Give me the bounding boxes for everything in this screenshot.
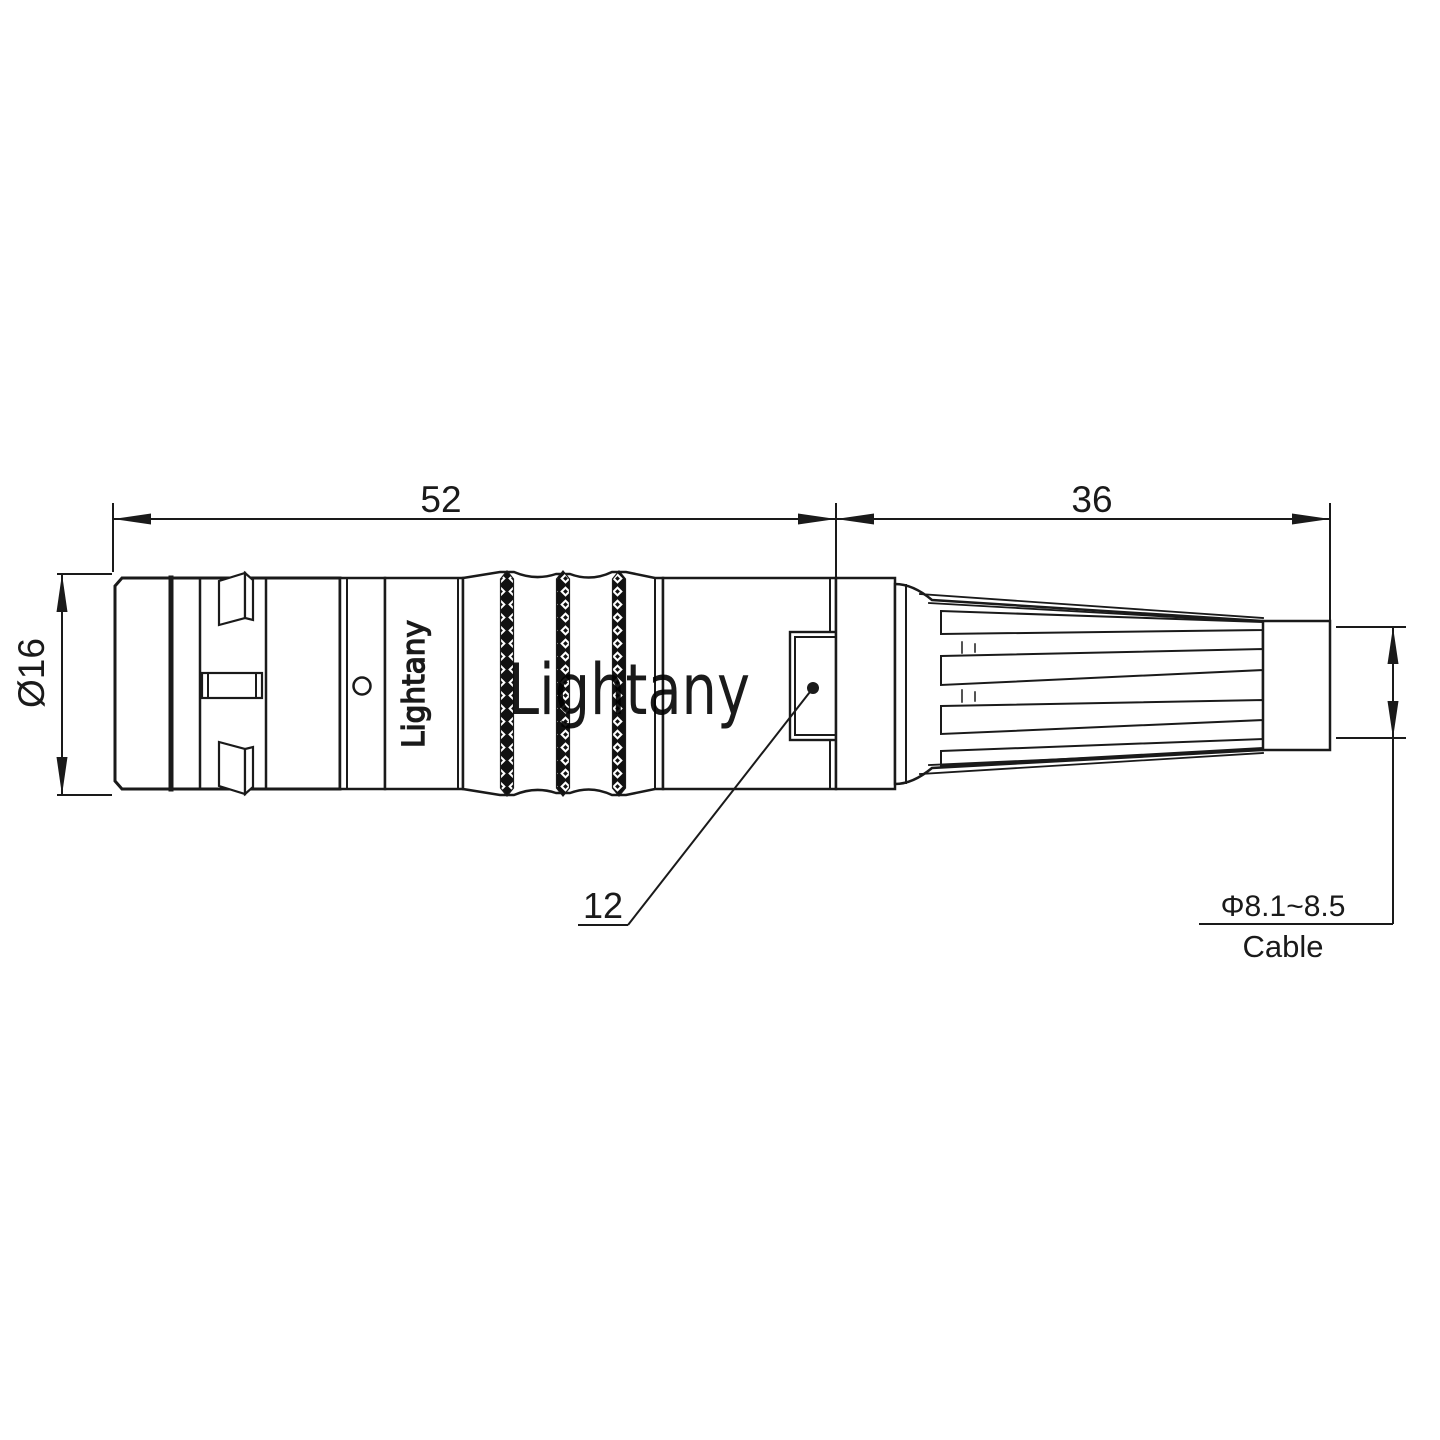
collar-hole (354, 678, 371, 695)
coupling-collar (340, 578, 385, 789)
arrowhead (836, 514, 874, 525)
arrowhead (57, 574, 68, 612)
cable-diameter-label: Φ8.1~8.5 (1221, 890, 1346, 923)
dimension-52 (113, 503, 836, 577)
front-shell (115, 573, 340, 794)
technical-drawing-canvas: Lightany (0, 0, 1440, 1440)
watermark-text: Lightany (508, 649, 750, 731)
arrowhead (57, 757, 68, 795)
arrowhead (113, 514, 151, 525)
drawing-page: Lightany (0, 0, 1440, 1440)
cable-end (1263, 621, 1330, 750)
dim-12-label: 12 (583, 885, 623, 926)
shell-brand-marking: Lightany (397, 620, 432, 748)
dimension-dia16 (57, 574, 113, 795)
dim-36-label: 36 (1071, 479, 1112, 520)
strain-relief-boot (895, 584, 1263, 784)
arrowhead (798, 514, 836, 525)
bayonet-key-top (219, 573, 253, 625)
bayonet-slot (202, 673, 262, 698)
backnut (836, 578, 895, 789)
cable-label: Cable (1243, 929, 1324, 964)
dim-dia16-label: Ø16 (11, 638, 52, 708)
dim-52-label: 52 (420, 479, 461, 520)
arrowhead (1388, 701, 1399, 738)
arrowhead (1292, 514, 1330, 525)
leader-dot (807, 682, 819, 694)
arrowhead (1388, 627, 1399, 664)
bayonet-key-bottom (219, 742, 253, 794)
